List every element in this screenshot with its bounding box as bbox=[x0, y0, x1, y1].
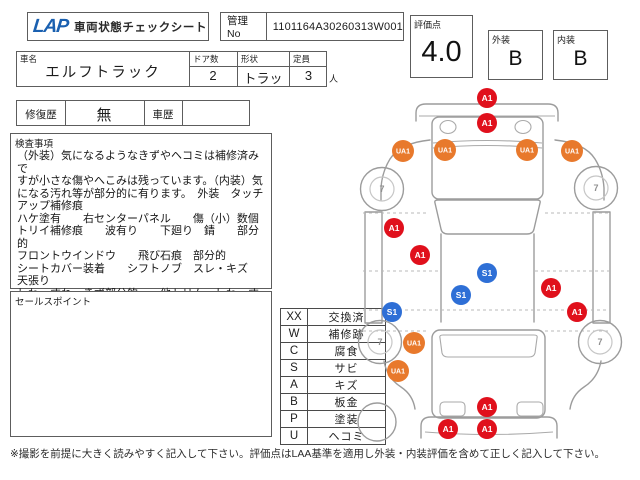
evaluation-score-value: 4.0 bbox=[411, 36, 472, 69]
evaluation-score-box: 評価点 4.0 bbox=[410, 15, 473, 78]
legend-code: W bbox=[281, 326, 308, 343]
car-history-label: 車歴 bbox=[144, 107, 182, 122]
svg-text:A1: A1 bbox=[482, 402, 493, 412]
damage-marker-a1: A1 bbox=[477, 397, 497, 417]
svg-text:UA1: UA1 bbox=[438, 148, 452, 155]
damage-marker-a1: A1 bbox=[567, 302, 587, 322]
shape-value: トラッ bbox=[237, 68, 289, 87]
capacity-value: 3 bbox=[289, 68, 328, 83]
svg-text:A1: A1 bbox=[389, 223, 400, 233]
damage-marker-s1: S1 bbox=[451, 285, 471, 305]
wheel-size-label: 7 bbox=[593, 183, 598, 193]
svg-text:A1: A1 bbox=[482, 424, 493, 434]
svg-text:UA1: UA1 bbox=[407, 341, 421, 348]
svg-text:A1: A1 bbox=[482, 118, 493, 128]
interior-grade-label: 内装 bbox=[557, 33, 575, 46]
doors-label: ドア数 bbox=[193, 54, 219, 64]
svg-text:A1: A1 bbox=[443, 424, 454, 434]
divider bbox=[182, 101, 183, 125]
vehicle-damage-diagram: 7777A1A1UA1UA1UA1UA1A1A1S1S1A1A1S1UA1UA1… bbox=[355, 85, 630, 445]
damage-marker-a1: A1 bbox=[477, 88, 497, 108]
damage-marker-ua1: UA1 bbox=[434, 139, 456, 161]
legend-code: A bbox=[281, 377, 308, 394]
wheel-size-label: 7 bbox=[379, 184, 384, 194]
spare-tire-outline bbox=[358, 403, 396, 441]
exterior-grade-label: 外装 bbox=[492, 33, 510, 46]
interior-grade-box: 内装 B bbox=[553, 30, 608, 80]
exterior-grade-box: 外装 B bbox=[488, 30, 543, 80]
svg-text:UA1: UA1 bbox=[396, 149, 410, 156]
sales-points-box: セールスポイント bbox=[10, 291, 272, 437]
legend-code: C bbox=[281, 343, 308, 360]
svg-text:A1: A1 bbox=[546, 283, 557, 293]
footer-note: ※撮影を前提に大きく読みやすく記入して下さい。評価点はLAA基準を適用し外装・内… bbox=[10, 446, 636, 461]
inspection-notes-box: 検査事項 （外装）気になるようなきずやヘコミは補修済みで すが小さな傷やへこみは… bbox=[10, 133, 272, 289]
svg-text:S1: S1 bbox=[456, 290, 467, 300]
title-box: LAP 車両状態チェックシート bbox=[27, 12, 209, 41]
shape-label: 形状 bbox=[241, 54, 258, 64]
damage-marker-a1: A1 bbox=[410, 245, 430, 265]
damage-marker-s1: S1 bbox=[382, 302, 402, 322]
management-no-box: 管理No 1101164A30260313W001 bbox=[220, 12, 404, 41]
lap-logo: LAP bbox=[32, 16, 69, 38]
damage-marker-a1: A1 bbox=[477, 113, 497, 133]
damage-marker-ua1: UA1 bbox=[392, 140, 414, 162]
evaluation-score-label: 評価点 bbox=[414, 18, 441, 31]
damage-marker-a1: A1 bbox=[477, 419, 497, 439]
inspection-notes-label: 検査事項 bbox=[15, 136, 53, 150]
damage-marker-a1: A1 bbox=[438, 419, 458, 439]
svg-text:A1: A1 bbox=[415, 250, 426, 260]
svg-text:A1: A1 bbox=[572, 307, 583, 317]
svg-text:UA1: UA1 bbox=[391, 369, 405, 376]
exterior-grade-value: B bbox=[489, 47, 542, 71]
damage-marker-ua1: UA1 bbox=[403, 332, 425, 354]
svg-text:A1: A1 bbox=[482, 93, 493, 103]
management-no-value: 1101164A30260313W001 bbox=[267, 21, 403, 33]
wheel-size-label: 7 bbox=[377, 337, 382, 347]
auction-sheet-page: { "header": { "logo": "LAP", "title": "車… bbox=[0, 0, 640, 480]
management-no-label: 管理No bbox=[221, 13, 267, 40]
legend-code: U bbox=[281, 428, 308, 445]
svg-text:S1: S1 bbox=[387, 307, 398, 317]
legend-code: B bbox=[281, 394, 308, 411]
legend-code: S bbox=[281, 360, 308, 377]
repair-history-value: 無 bbox=[65, 104, 144, 125]
svg-text:UA1: UA1 bbox=[520, 148, 534, 155]
svg-text:S1: S1 bbox=[482, 268, 493, 278]
vehicle-name-value: エルフトラック bbox=[17, 61, 189, 82]
divider bbox=[189, 66, 326, 67]
repair-history-label: 修復歴 bbox=[17, 107, 65, 122]
vehicle-info-box: 車名 エルフトラック ドア数 2 形状 トラッ 定員 3 bbox=[16, 51, 327, 87]
damage-marker-ua1: UA1 bbox=[561, 140, 583, 162]
interior-grade-value: B bbox=[554, 47, 607, 71]
legend-code: XX bbox=[281, 309, 308, 326]
damage-marker-ua1: UA1 bbox=[387, 360, 409, 382]
damage-marker-ua1: UA1 bbox=[516, 139, 538, 161]
doors-value: 2 bbox=[189, 68, 237, 83]
sales-points-label: セールスポイント bbox=[15, 294, 91, 308]
capacity-unit: 人 bbox=[329, 72, 338, 85]
damage-marker-a1: A1 bbox=[384, 218, 404, 238]
svg-text:UA1: UA1 bbox=[565, 149, 579, 156]
sheet-title: 車両状態チェックシート bbox=[74, 19, 207, 35]
legend-code: P bbox=[281, 411, 308, 428]
damage-marker-s1: S1 bbox=[477, 263, 497, 283]
wheel-size-label: 7 bbox=[597, 337, 602, 347]
capacity-label: 定員 bbox=[293, 54, 310, 64]
repair-history-box: 修復歴 無 車歴 bbox=[16, 100, 250, 126]
damage-marker-a1: A1 bbox=[541, 278, 561, 298]
